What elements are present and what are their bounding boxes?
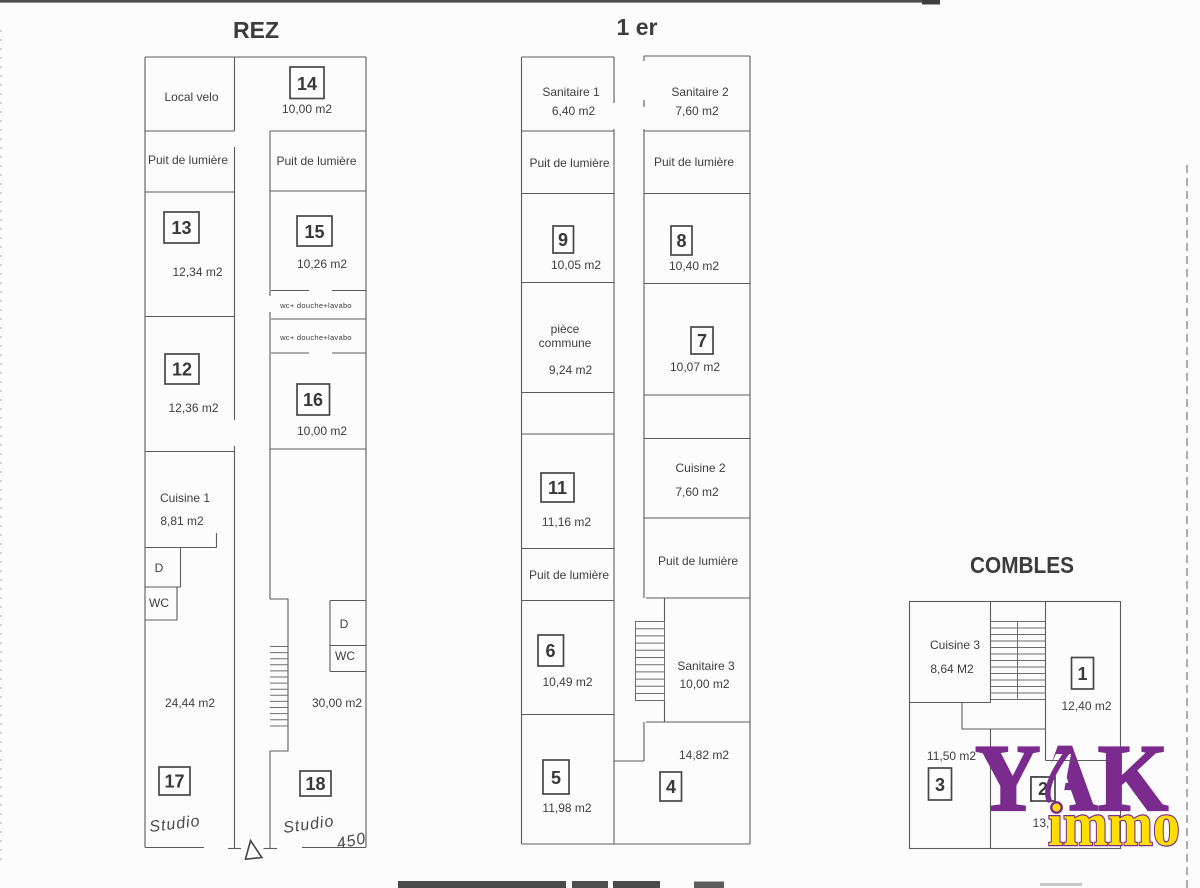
svg-text:6: 6: [545, 641, 555, 661]
svg-text:14,82 m2: 14,82 m2: [679, 748, 729, 762]
svg-text:7,60 m2: 7,60 m2: [675, 104, 719, 118]
svg-text:pièce: pièce: [551, 322, 580, 336]
svg-text:Puit de lumière: Puit de lumière: [654, 155, 734, 169]
svg-text:11,98 m2: 11,98 m2: [542, 801, 591, 815]
svg-text:WC: WC: [335, 649, 355, 663]
svg-text:COMBLES: COMBLES: [970, 552, 1074, 578]
svg-text:5: 5: [551, 768, 561, 788]
svg-text:1: 1: [1077, 664, 1087, 684]
svg-text:4: 4: [666, 777, 676, 797]
svg-text:10,49 m2: 10,49 m2: [542, 675, 592, 689]
svg-text:8: 8: [676, 231, 686, 251]
svg-text:Local velo: Local velo: [164, 90, 218, 104]
svg-text:10,05 m2: 10,05 m2: [551, 258, 601, 272]
svg-text:16: 16: [303, 390, 323, 410]
svg-text:Puit de lumière: Puit de lumière: [529, 568, 609, 582]
svg-text:10,26 m2: 10,26 m2: [297, 257, 347, 271]
svg-text:30,00 m2: 30,00 m2: [312, 696, 362, 710]
svg-text:14: 14: [297, 74, 317, 94]
svg-text:wc+ douche+lavabo: wc+ douche+lavabo: [279, 301, 352, 310]
svg-text:Puit de lumière: Puit de lumière: [276, 154, 356, 168]
svg-text:9,24 m2: 9,24 m2: [549, 363, 593, 377]
svg-text:D: D: [155, 561, 164, 575]
svg-text:Puit de lumière: Puit de lumière: [529, 156, 609, 170]
svg-text:Cuisine 3: Cuisine 3: [930, 638, 980, 652]
svg-text:24,44 m2: 24,44 m2: [165, 696, 215, 710]
svg-text:13: 13: [171, 218, 191, 238]
svg-text:12,40 m2: 12,40 m2: [1061, 699, 1111, 713]
svg-text:11: 11: [548, 478, 567, 498]
svg-text:Cuisine 1: Cuisine 1: [160, 491, 210, 505]
svg-text:17: 17: [164, 772, 184, 792]
svg-text:D: D: [340, 617, 349, 631]
svg-text:Sanitaire 1: Sanitaire 1: [542, 85, 600, 99]
svg-text:18: 18: [305, 774, 325, 794]
svg-text:wc+ douche+lavabo: wc+ douche+lavabo: [279, 333, 352, 342]
svg-text:6,40 m2: 6,40 m2: [552, 104, 596, 118]
svg-text:REZ: REZ: [233, 17, 279, 43]
svg-text:3: 3: [935, 775, 945, 795]
svg-text:7,60 m2: 7,60 m2: [675, 485, 719, 499]
svg-text:Sanitaire 2: Sanitaire 2: [671, 85, 729, 99]
svg-text:ımmo: ımmo: [1048, 790, 1180, 859]
svg-text:15: 15: [304, 222, 324, 242]
svg-text:10,00 m2: 10,00 m2: [679, 677, 729, 691]
svg-text:WC: WC: [149, 596, 169, 610]
svg-text:12,36 m2: 12,36 m2: [168, 401, 218, 415]
svg-text:Cuisine 2: Cuisine 2: [675, 461, 725, 475]
svg-text:Sanitaire 3: Sanitaire 3: [677, 659, 735, 673]
svg-text:11,16 m2: 11,16 m2: [542, 515, 591, 529]
svg-text:commune: commune: [539, 336, 592, 350]
svg-text:12,34 m2: 12,34 m2: [172, 265, 222, 279]
svg-text:11,50 m2: 11,50 m2: [927, 749, 976, 763]
svg-text:10,07 m2: 10,07 m2: [670, 360, 720, 374]
svg-text:Puit de lumière: Puit de lumière: [658, 554, 738, 568]
svg-text:8,64 M2: 8,64 M2: [930, 662, 974, 676]
svg-text:10,00 m2: 10,00 m2: [297, 424, 347, 438]
svg-text:10,00 m2: 10,00 m2: [282, 102, 332, 116]
svg-text:8,81 m2: 8,81 m2: [160, 514, 204, 528]
svg-text:Puit de lumière: Puit de lumière: [148, 153, 228, 167]
svg-text:10,40 m2: 10,40 m2: [669, 259, 719, 273]
svg-text:12: 12: [172, 360, 192, 380]
svg-text:7: 7: [697, 331, 707, 351]
svg-text:9: 9: [558, 230, 568, 250]
svg-text:1 er: 1 er: [617, 14, 658, 40]
